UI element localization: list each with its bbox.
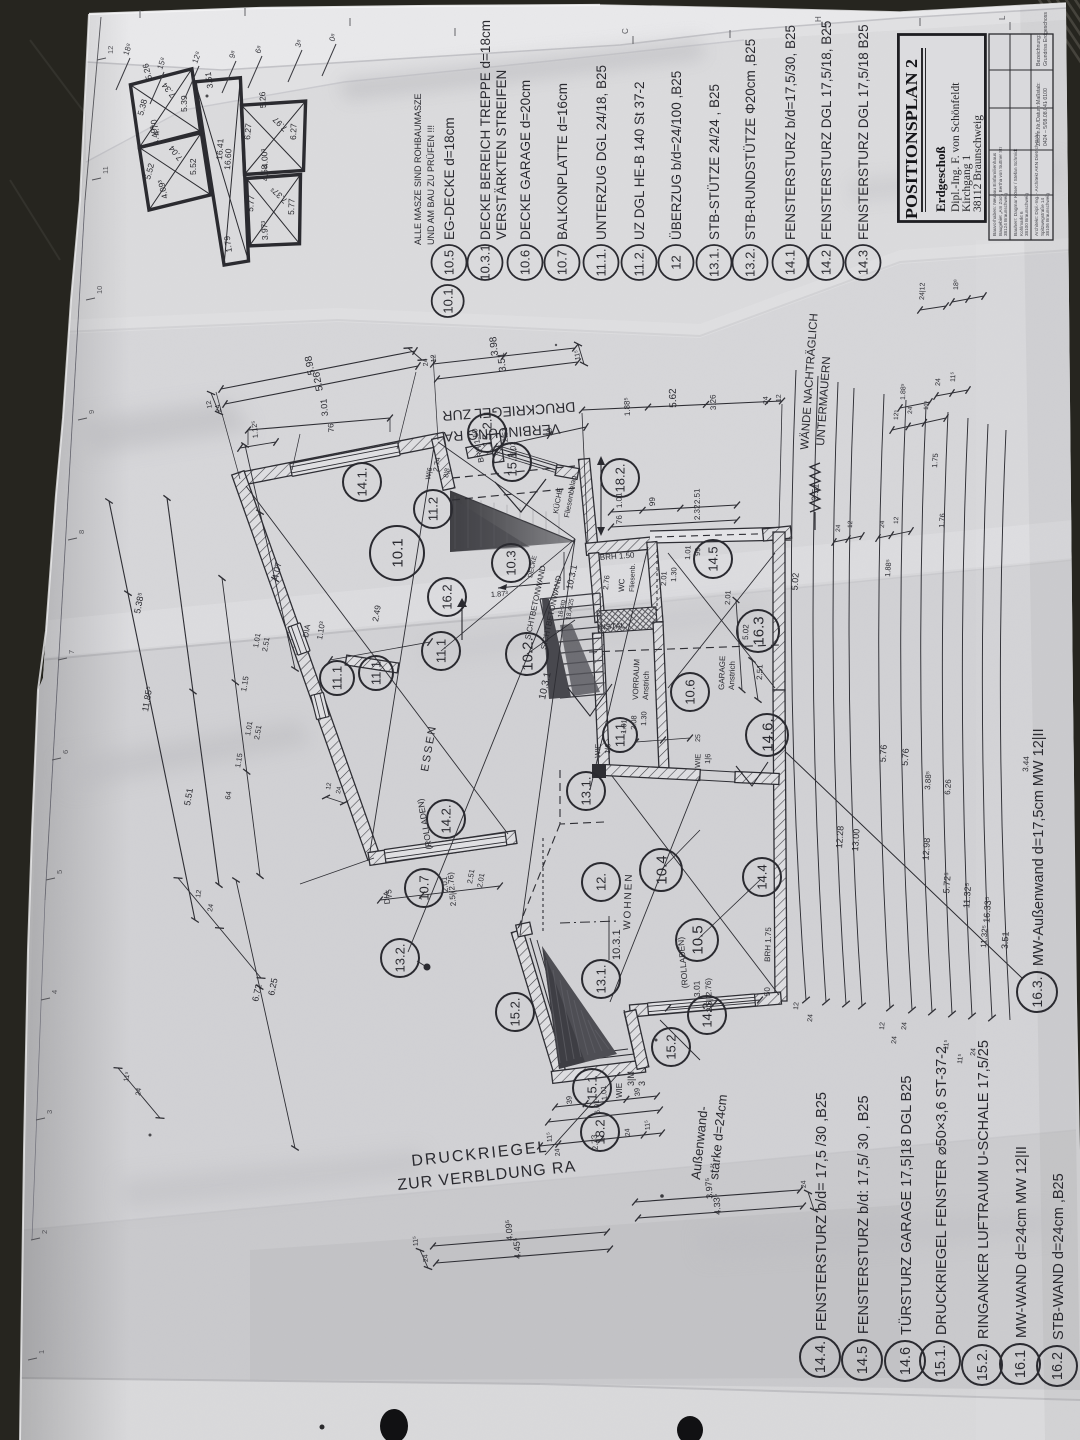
svg-text:MW-Außenwand d=17,5cm MW 12: MW-Außenwand d=17,5cm MW 12|II (1031, 728, 1047, 966)
svg-text:3.44: 3.44 (1021, 755, 1031, 772)
svg-text:5.52: 5.52 (188, 158, 198, 175)
svg-text:14.5: 14.5 (706, 546, 721, 571)
svg-text:1.75: 1.75 (930, 453, 940, 468)
svg-text:4.45⁵: 4.45⁵ (511, 1237, 522, 1259)
svg-text:24: 24 (907, 406, 914, 414)
svg-text:11.32⁵: 11.32⁵ (979, 925, 990, 948)
svg-text:STB-STÜTZE 24/24 , B25: STB-STÜTZE 24/24 , B25 (707, 84, 722, 240)
svg-text:2.5|(2.76): 2.5|(2.76) (704, 978, 714, 1013)
svg-text:WIE: WIE (693, 754, 702, 768)
svg-text:10.3.1: 10.3.1 (478, 244, 493, 280)
svg-text:4.09⁵: 4.09⁵ (503, 1219, 514, 1241)
svg-text:VORRAUM: VORRAUM (631, 659, 641, 701)
svg-text:76: 76 (326, 422, 336, 432)
svg-text:1: 1 (37, 1350, 46, 1354)
svg-text:12: 12 (669, 255, 684, 269)
svg-text:14.3: 14.3 (856, 250, 871, 275)
svg-text:Maßstab:: Maßstab: (1036, 82, 1042, 104)
svg-text:10: 10 (95, 286, 104, 294)
svg-text:UNTERZUG DGL 24/18, B25: UNTERZUG DGL 24/18, B25 (594, 65, 609, 240)
svg-text:TÜRSTURZ GARAGE 17,5|18 DGL B: TÜRSTURZ GARAGE 17,5|18 DGL B25 (897, 1076, 915, 1335)
svg-text:11.32⁵: 11.32⁵ (961, 882, 973, 908)
svg-text:Erdgeschoß: Erdgeschoß (933, 146, 948, 212)
svg-text:5.77: 5.77 (286, 198, 297, 215)
svg-text:2.01: 2.01 (659, 571, 669, 586)
svg-text:24: 24 (807, 1014, 815, 1022)
svg-text:39: 39 (564, 1096, 574, 1105)
svg-text:24: 24 (624, 1128, 632, 1136)
svg-text:1.88⁵: 1.88⁵ (900, 383, 908, 400)
svg-text:12: 12 (879, 1022, 887, 1030)
svg-text:BRH 1.75: BRH 1.75 (763, 927, 773, 963)
svg-text:11.1.: 11.1. (594, 249, 609, 277)
svg-text:24: 24 (215, 404, 223, 413)
svg-text:12.98: 12.98 (921, 837, 933, 860)
svg-text:12: 12 (893, 516, 900, 524)
svg-text:13.00: 13.00 (850, 828, 862, 851)
svg-text:16.3.: 16.3. (1029, 976, 1045, 1007)
svg-text:UZ DGL HE-B 140 St 37-2: UZ DGL HE-B 140 St 37-2 (632, 81, 647, 240)
svg-text:6: 6 (61, 750, 70, 754)
svg-text:1.76: 1.76 (937, 513, 947, 528)
svg-text:24: 24 (422, 358, 430, 367)
svg-text:5.62: 5.62 (668, 388, 680, 408)
svg-text:2.73: 2.73 (590, 1134, 600, 1151)
svg-text:4: 4 (50, 990, 59, 994)
svg-text:5.02: 5.02 (741, 624, 751, 640)
svg-text:24: 24 (800, 1180, 808, 1188)
svg-text:3.97³: 3.97³ (259, 220, 270, 240)
svg-text:14.6: 14.6 (898, 1347, 914, 1375)
svg-text:2.08: 2.08 (629, 715, 639, 730)
svg-text:10.5: 10.5 (442, 250, 457, 275)
svg-text:12: 12 (206, 400, 214, 409)
svg-text:DECKE BEREICH TREPPE d=18cm: DECKE BEREICH TREPPE d=18cm (478, 20, 493, 240)
svg-text:MW-WAND d=24cm MW 12|II: MW-WAND d=24cm MW 12|II (1014, 1146, 1030, 1338)
svg-text:10.6: 10.6 (518, 250, 533, 275)
svg-text:16.3: 16.3 (750, 616, 767, 645)
svg-text:FENSTERSTURZ b/d=17,5/30, B25: FENSTERSTURZ b/d=17,5/30, B25 (783, 25, 798, 240)
svg-text:FENSTERSTURZ DGL 17,5/18 B25: FENSTERSTURZ DGL 17,5/18 B25 (856, 24, 871, 240)
svg-text:38124 Braunschweig: 38124 Braunschweig (1003, 193, 1008, 236)
svg-text:12: 12 (195, 889, 203, 898)
svg-text:3.01: 3.01 (319, 398, 330, 416)
svg-text:10.7: 10.7 (555, 250, 570, 275)
svg-text:11⁵: 11⁵ (412, 1236, 420, 1247)
svg-text:16.41: 16.41 (214, 138, 225, 160)
svg-text:14.5: 14.5 (855, 1346, 871, 1374)
svg-text:1.88⁵: 1.88⁵ (883, 559, 893, 577)
svg-text:5: 5 (55, 870, 64, 874)
svg-text:14.6.: 14.6. (759, 718, 776, 751)
svg-text:11⁵: 11⁵ (957, 1053, 965, 1064)
svg-text:2.76: 2.76 (601, 575, 611, 590)
svg-text:3.26: 3.26 (708, 394, 718, 410)
svg-text:Bezeichnung:: Bezeichnung: (1036, 35, 1042, 66)
svg-text:WC: WC (617, 578, 626, 592)
svg-text:Anstrich: Anstrich (727, 661, 737, 690)
svg-text:24: 24 (763, 396, 770, 404)
svg-text:24|12: 24|12 (919, 282, 927, 300)
svg-text:1.88⁵: 1.88⁵ (622, 397, 632, 416)
svg-text:24: 24 (891, 1036, 899, 1044)
svg-text:15.1.: 15.1. (933, 1345, 949, 1377)
svg-text:11⁵: 11⁵ (574, 350, 582, 361)
svg-text:99: 99 (648, 496, 657, 506)
svg-text:UND AM BAU ZU PRÜFEN !!!: UND AM BAU ZU PRÜFEN !!! (426, 125, 436, 245)
svg-text:5.26: 5.26 (257, 91, 268, 108)
svg-text:5.01: 5.01 (508, 441, 518, 456)
svg-text:13.1.: 13.1. (594, 965, 609, 994)
svg-text:13.1.: 13.1. (579, 777, 594, 806)
svg-text:1.30: 1.30 (639, 711, 649, 726)
svg-text:6.27: 6.27 (242, 123, 253, 141)
svg-text:14.2.: 14.2. (439, 805, 454, 834)
svg-text:24: 24 (935, 378, 942, 386)
svg-text:5.02: 5.02 (790, 572, 801, 590)
svg-text:STB-WAND d=24cm ,B25: STB-WAND d=24cm ,B25 (1051, 1173, 1067, 1340)
svg-text:WOHNEN: WOHNEN (622, 872, 635, 930)
svg-text:11.1: 11.1 (369, 661, 384, 685)
svg-text:DRUCKRIEGEL FENSTER ⌀50×3,6: DRUCKRIEGEL FENSTER ⌀50×3,6 ST-37-2 (934, 1046, 950, 1335)
svg-text:Anstrich: Anstrich (641, 671, 651, 700)
svg-text:GARAGE: GARAGE (717, 656, 727, 691)
svg-text:Fliesenb.: Fliesenb. (629, 563, 637, 592)
svg-text:15.2.: 15.2. (975, 1349, 991, 1381)
svg-text:Grundriss Erdgeschoss: Grundriss Erdgeschoss (1043, 12, 1049, 66)
svg-text:24: 24 (207, 903, 215, 912)
svg-text:DECKE GARAGE d=20cm: DECKE GARAGE d=20cm (518, 80, 533, 240)
svg-text:6.26: 6.26 (943, 778, 953, 795)
svg-text:64: 64 (223, 791, 233, 801)
svg-text:5.76: 5.76 (900, 748, 911, 766)
svg-text:12: 12 (847, 520, 854, 528)
svg-text:2: 2 (40, 1230, 49, 1234)
svg-text:15.2.: 15.2. (508, 998, 523, 1027)
svg-text:10.1: 10.1 (389, 538, 406, 567)
svg-text:24: 24 (422, 1254, 430, 1262)
svg-text:1|6: 1|6 (603, 743, 612, 754)
svg-text:11⁵: 11⁵ (923, 400, 930, 410)
svg-text:24: 24 (901, 1022, 909, 1030)
svg-text:ÜBERZUG b/d=24/100 ,B25: ÜBERZUG b/d=24/100 ,B25 (669, 71, 684, 240)
svg-text:16.2: 16.2 (440, 584, 455, 609)
svg-text:38100 Braunschweig: 38100 Braunschweig (1024, 193, 1029, 236)
svg-text:1.12⁵: 1.12⁵ (249, 420, 260, 438)
svg-text:12.28: 12.28 (834, 825, 846, 848)
svg-text:10.5: 10.5 (689, 925, 706, 954)
svg-text:76: 76 (615, 514, 624, 524)
svg-text:99: 99 (693, 547, 702, 556)
svg-text:39: 39 (632, 1088, 642, 1097)
svg-text:1.30: 1.30 (669, 567, 679, 582)
svg-text:11.2.: 11.2. (632, 249, 647, 277)
svg-text:EG-DECKE d=18cm: EG-DECKE d=18cm (442, 117, 457, 240)
svg-text:11.2: 11.2 (426, 497, 441, 521)
svg-text:VERSTÄRKTEN STREIFEN: VERSTÄRKTEN STREIFEN (494, 70, 509, 240)
svg-text:12: 12 (106, 46, 115, 54)
svg-text:18⁸: 18⁸ (953, 279, 960, 290)
svg-text:10.1: 10.1 (440, 288, 455, 313)
svg-text:24: 24 (970, 1048, 978, 1056)
svg-text:10.3.1: 10.3.1 (611, 929, 623, 960)
svg-text:3|M: 3|M (626, 1071, 636, 1086)
svg-text:18.2.: 18.2. (613, 464, 628, 493)
svg-text:L: L (998, 15, 1007, 20)
svg-text:7: 7 (67, 650, 76, 654)
svg-text:12.: 12. (594, 873, 609, 891)
svg-text:12: 12 (430, 354, 438, 363)
svg-text:14.4: 14.4 (755, 864, 770, 889)
svg-text:C: C (621, 28, 630, 34)
svg-text:1.87³: 1.87³ (491, 589, 509, 599)
svg-text:12: 12 (793, 1002, 801, 1010)
svg-text:3: 3 (637, 1081, 647, 1086)
svg-text:6.27: 6.27 (288, 123, 299, 140)
svg-text:5.76: 5.76 (878, 744, 889, 762)
svg-text:50: 50 (763, 986, 772, 996)
svg-text:16.1: 16.1 (1013, 1350, 1029, 1378)
svg-text:DIA: DIA (382, 890, 392, 905)
svg-text:8: 8 (77, 530, 86, 534)
svg-text:14.2: 14.2 (819, 250, 834, 275)
svg-text:11⁵: 11⁵ (943, 1039, 951, 1050)
svg-text:15.2: 15.2 (664, 1034, 679, 1059)
svg-text:ALLE MASZE SIND ROHBAUMASZE: ALLE MASZE SIND ROHBAUMASZE (413, 93, 423, 245)
svg-text:24: 24 (135, 1087, 143, 1096)
svg-text:13.2.: 13.2. (393, 944, 408, 973)
svg-text:16.33⁵: 16.33⁵ (981, 896, 993, 923)
svg-text:12⁵: 12⁵ (893, 410, 900, 420)
svg-text:3.51: 3.51 (1000, 931, 1011, 949)
svg-text:3.88⁵: 3.88⁵ (923, 771, 933, 790)
svg-text:5.39: 5.39 (179, 95, 189, 112)
svg-text:2.32: 2.32 (692, 504, 702, 520)
svg-text:10.4: 10.4 (653, 855, 670, 884)
svg-text:3: 3 (45, 1110, 54, 1114)
svg-text:1.01: 1.01 (683, 545, 693, 560)
svg-text:POSITIONSPLAN 2: POSITIONSPLAN 2 (902, 59, 921, 219)
svg-text:10.3: 10.3 (504, 550, 519, 575)
svg-text:11⁵: 11⁵ (950, 372, 957, 383)
svg-text:16.2: 16.2 (1050, 1352, 1066, 1380)
svg-text:4.33⁵: 4.33⁵ (711, 1193, 722, 1215)
svg-text:11⁵: 11⁵ (644, 1120, 652, 1131)
svg-text:0424 – 5/08.08.04 - 0: 0424 – 5/08.08.04 - 0 (1043, 97, 1049, 146)
svg-text:10.6: 10.6 (683, 679, 698, 704)
svg-text:9: 9 (87, 410, 96, 414)
svg-text:1|6: 1|6 (703, 753, 712, 764)
svg-text:38112 Braunschweig: 38112 Braunschweig (972, 115, 984, 212)
svg-text:2.01: 2.01 (723, 590, 733, 605)
svg-text:FENSTERSTURZ DGL 17,5/18, B25: FENSTERSTURZ DGL 17,5/18, B25 (819, 21, 834, 240)
svg-text:12: 12 (776, 394, 783, 402)
svg-text:RINGANKER LUFTRAUM U-SCHALE: RINGANKER LUFTRAUM U-SCHALE 17,5/25 (976, 1040, 992, 1339)
svg-text:2.51: 2.51 (755, 664, 765, 680)
svg-text:STB-RUNDSTÜTZE Φ20cm ,B25: STB-RUNDSTÜTZE Φ20cm ,B25 (743, 39, 758, 240)
svg-text:10.7: 10.7 (417, 875, 432, 900)
svg-text:25: 25 (695, 734, 702, 742)
svg-text:3.01: 3.01 (691, 980, 702, 997)
svg-text:1.01: 1.01 (599, 1085, 609, 1100)
svg-text:WIE: WIE (615, 1083, 624, 1098)
svg-text:14.1.: 14.1. (355, 468, 370, 497)
svg-text:38106 Braunschweig: 38106 Braunschweig (1045, 193, 1050, 236)
svg-text:1.01: 1.01 (614, 492, 624, 508)
svg-text:5.72⁵: 5.72⁵ (941, 872, 952, 894)
svg-text:14.1: 14.1 (783, 250, 798, 275)
svg-text:24: 24 (835, 524, 842, 532)
svg-text:WIE: WIE (593, 744, 602, 758)
svg-text:1.01: 1.01 (619, 719, 629, 734)
svg-text:FENSTERSTURZ b/d: 17,5/ 30 ,: FENSTERSTURZ b/d: 17,5/ 30 , B25 (856, 1095, 872, 1334)
svg-text:24: 24 (879, 520, 886, 528)
svg-text:2.51: 2.51 (692, 488, 702, 504)
svg-text:5.77: 5.77 (245, 195, 256, 213)
svg-text:10.2.: 10.2. (519, 637, 536, 670)
svg-text:11: 11 (101, 166, 110, 174)
svg-text:14.4.: 14.4. (813, 1341, 829, 1373)
svg-text:13.1.: 13.1. (707, 248, 722, 277)
svg-text:Zeichn.Nr./Datum:: Zeichn.Nr./Datum: (1036, 104, 1042, 146)
svg-text:3.51: 3.51 (496, 352, 509, 373)
svg-text:24: 24 (554, 1148, 562, 1156)
svg-text:13.2.: 13.2. (743, 248, 758, 277)
svg-text:11.1: 11.1 (330, 666, 345, 690)
svg-text:4.58: 4.58 (259, 164, 270, 181)
svg-text:BALKONPLATTE d=16cm: BALKONPLATTE d=16cm (555, 83, 570, 240)
